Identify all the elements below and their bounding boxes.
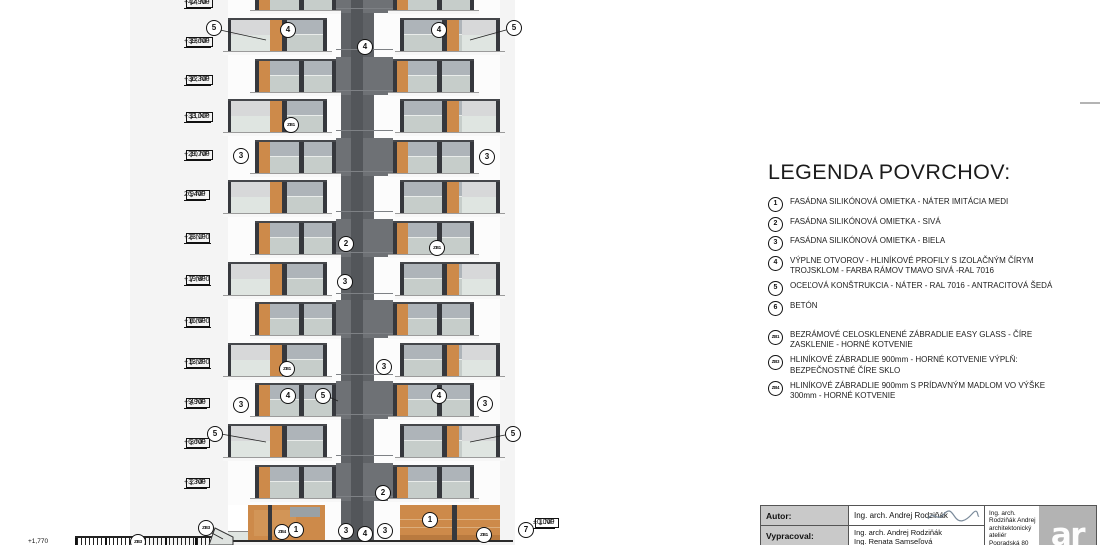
office-info: Ing. arch. Rodziňák Andrej architektonic…: [985, 506, 1041, 545]
module-top-line: [228, 180, 327, 182]
legend-item: ZB1BEZRÁMOVÉ CELOSKLENENÉ ZÁBRADLIE EASY…: [768, 330, 1088, 351]
window-mullion: [255, 302, 259, 335]
legend-item-text: VÝPLNE OTVOROV - HLINÍKOVÉ PROFILY S IZO…: [790, 256, 1068, 277]
timber-panel: [397, 383, 408, 416]
legend-item-tag: 5: [768, 281, 783, 296]
annotation-bubble: 2: [375, 485, 391, 501]
balcony-side-wall: [462, 180, 497, 197]
legend-item-tag: ZB3: [768, 355, 783, 370]
floor-module: [255, 465, 336, 498]
floor-module: [400, 99, 500, 132]
balcony-side-wall: [462, 99, 497, 116]
level-floor-box: 14.NP: [186, 0, 213, 8]
window-mullion: [282, 262, 287, 295]
balcony-railing-glass: [462, 197, 497, 213]
balcony-railing-glass: [231, 360, 270, 376]
level-floor-box: 8.NP: [186, 233, 210, 243]
balcony-slab: [250, 416, 341, 420]
window-mullion: [400, 18, 404, 51]
annotation-bubble: 3: [377, 523, 393, 539]
floor-module: [400, 18, 500, 51]
window-mullion: [299, 140, 304, 173]
annotation-bubble: 4: [431, 22, 447, 38]
window-mullion: [332, 59, 336, 92]
module-top-line: [255, 221, 336, 223]
fence-tick: [89, 538, 90, 545]
level-floor-box: 2.NP: [186, 478, 210, 488]
window-mullion: [470, 59, 474, 92]
window-mullion: [323, 18, 327, 51]
window-mullion: [393, 59, 397, 92]
fence-tick: [121, 538, 122, 545]
annotation-bubble: ZB3: [198, 520, 214, 536]
fence-tick: [205, 538, 206, 545]
floor-module: [400, 262, 500, 295]
level-floor-box: 1.NP: [535, 518, 559, 528]
level-floor-box: 6.NP: [186, 317, 210, 327]
window-mullion: [393, 383, 397, 416]
fence-post: [105, 538, 107, 545]
fence-tick: [189, 538, 190, 545]
ground-mullion: [268, 505, 272, 541]
module-top-line: [393, 221, 474, 223]
module-top-line: [393, 59, 474, 61]
window-mullion: [470, 221, 474, 254]
window-mullion: [496, 18, 500, 51]
fence-tick: [201, 538, 202, 545]
fence-tick: [149, 538, 150, 545]
floor-module: [400, 343, 500, 376]
fence-post: [75, 538, 77, 545]
vypracoval-names: Ing. arch. Andrej Rodziňák Ing. Renata S…: [849, 526, 985, 545]
annotation-bubble: 5: [206, 20, 222, 36]
window-mullion: [437, 465, 442, 498]
balcony-railing-glass: [462, 360, 497, 376]
window-mullion: [255, 0, 259, 10]
balcony-railing-glass: [231, 35, 270, 51]
level-floor-box: 10.NP: [186, 150, 213, 160]
window-mullion: [282, 424, 287, 457]
legend-item-text: BETÓN: [790, 301, 1068, 316]
fence-tick: [213, 538, 214, 545]
window-mullion: [470, 465, 474, 498]
balcony-side-wall: [231, 262, 270, 279]
window-mullion: [400, 180, 404, 213]
module-top-line: [400, 424, 500, 426]
core-wide-section: [336, 0, 393, 13]
window-mullion: [400, 99, 404, 132]
balcony-slab: [395, 457, 505, 461]
floor-module: [228, 180, 327, 213]
level-floor-box: 4.NP: [186, 398, 210, 408]
window-mullion: [299, 383, 304, 416]
window-mullion: [437, 59, 442, 92]
balcony-slab: [388, 498, 479, 502]
core-slab-line: [336, 90, 393, 91]
annotation-bubble: 4: [357, 39, 373, 55]
balcony-slab: [395, 51, 505, 55]
core-slab-line: [336, 333, 393, 334]
floor-module: [393, 0, 474, 10]
balcony-railing-glass: [231, 279, 270, 295]
window-mullion: [437, 0, 442, 10]
floor-module: [255, 59, 336, 92]
fence-tick: [169, 538, 170, 545]
window-mullion: [400, 343, 404, 376]
window-mullion: [332, 383, 336, 416]
annotation-bubble: 4: [431, 388, 447, 404]
window-mullion: [393, 465, 397, 498]
window-mullion: [228, 18, 231, 51]
timber-panel: [259, 140, 270, 173]
module-top-line: [393, 140, 474, 142]
window-mullion: [442, 262, 447, 295]
timber-panel: [397, 140, 408, 173]
window-mullion: [442, 343, 447, 376]
fence-tick: [197, 538, 198, 545]
timber-panel: [259, 465, 270, 498]
floor-module: [393, 302, 474, 335]
legend-item-tag: ZB4: [768, 381, 783, 396]
core-slab-line: [336, 455, 393, 456]
balcony-slab: [223, 132, 332, 136]
fence-tick: [113, 538, 114, 545]
balcony-slab: [250, 498, 341, 502]
timber-panel: [447, 262, 459, 295]
window-mullion: [255, 383, 259, 416]
module-top-line: [400, 262, 500, 264]
fence-tick: [217, 538, 218, 545]
fence-tick: [157, 538, 158, 545]
balcony-side-wall: [231, 18, 270, 35]
window-mullion: [323, 262, 327, 295]
annotation-bubble: 7: [518, 522, 534, 538]
floor-module: [228, 99, 327, 132]
annotation-bubble: 3: [337, 274, 353, 290]
window-mullion: [228, 262, 231, 295]
level-floor-box: 7.NP: [186, 275, 210, 285]
level-floor-box: 9.NP: [186, 190, 210, 200]
legend-item-text: HLINÍKOVÉ ZÁBRADLIE 900mm S PRÍDAVNÝM MA…: [790, 381, 1068, 402]
annotation-bubble: 3: [479, 149, 495, 165]
window-mullion: [496, 180, 500, 213]
window-mullion: [393, 0, 397, 10]
window-mullion: [282, 180, 287, 213]
core-slab-line: [336, 252, 393, 253]
autor-name: Ing. arch. Andrej Rodziňák: [849, 506, 985, 526]
annotation-bubble: ZB1: [429, 240, 445, 256]
window-mullion: [393, 140, 397, 173]
window-mullion: [393, 302, 397, 335]
annotation-bubble: 5: [505, 426, 521, 442]
annotation-bubble: 5: [506, 20, 522, 36]
legend-item-text: HLINÍKOVÉ ZÁBRADLIE 900mm - HORNÉ KOTVEN…: [790, 355, 1068, 376]
timber-panel: [259, 383, 270, 416]
title-block: Autor: Ing. arch. Andrej Rodziňák Vyprac…: [760, 505, 1097, 545]
legend-item-text: FASÁDNA SILIKÓNOVÁ OMIETKA - SIVÁ: [790, 217, 1068, 232]
module-top-line: [400, 180, 500, 182]
fence-tick: [177, 538, 178, 545]
balcony-railing-glass: [462, 279, 497, 295]
window-mullion: [255, 465, 259, 498]
legend-item-tag: 4: [768, 256, 783, 271]
timber-panel: [397, 465, 408, 498]
timber-panel: [447, 180, 459, 213]
balcony-slab: [250, 254, 341, 258]
legend-item-tag: 1: [768, 197, 783, 212]
ground-level-note: +1,770: [28, 538, 48, 545]
core-center-column: [351, 0, 363, 541]
balcony-railing-glass: [231, 116, 270, 132]
legend-item-list: 1FASÁDNA SILIKÓNOVÁ OMIETKA - NÁTER IMIT…: [768, 197, 1088, 402]
core-slab-line: [336, 171, 393, 172]
balcony-side-wall: [462, 343, 497, 360]
balcony-slab: [223, 376, 332, 380]
balcony-side-wall: [231, 424, 270, 441]
balcony-slab: [388, 335, 479, 339]
balcony-slab: [388, 92, 479, 96]
window-mullion: [228, 99, 231, 132]
architectural-drawing-sheet: +42,900↓14.NP+39,600↓13.NP+36,300↓12.NP+…: [0, 0, 1100, 545]
balcony-slab: [250, 92, 341, 96]
window-mullion: [323, 99, 327, 132]
annotation-bubble: 2: [338, 236, 354, 252]
floor-module: [393, 59, 474, 92]
window-mullion: [332, 465, 336, 498]
sheet-edge-mark: [1080, 102, 1100, 104]
legend-item-tag: ZB1: [768, 330, 783, 345]
window-mullion: [255, 221, 259, 254]
legend-item: 3FASÁDNA SILIKÓNOVÁ OMIETKA - BIELA: [768, 236, 1088, 251]
floor-module: [255, 0, 336, 10]
legend-title: LEGENDA POVRCHOV:: [768, 160, 1088, 185]
timber-panel: [270, 262, 282, 295]
annotation-bubble: 3: [376, 359, 392, 375]
annotation-bubble: 3: [233, 397, 249, 413]
module-top-line: [255, 302, 336, 304]
annotation-bubble: ZB1: [279, 361, 295, 377]
window-mullion: [470, 302, 474, 335]
floor-module: [255, 302, 336, 335]
floor-module: [228, 18, 327, 51]
window-mullion: [496, 424, 500, 457]
annotation-bubble: 1: [422, 512, 438, 528]
autor-label: Autor:: [761, 506, 849, 526]
balcony-side-wall: [231, 180, 270, 197]
balcony-slab: [223, 457, 332, 461]
level-floor-box: 11.NP: [186, 112, 213, 122]
timber-panel: [447, 18, 459, 51]
fence-tick: [209, 538, 210, 545]
window-mullion: [437, 302, 442, 335]
floor-module: [255, 140, 336, 173]
timber-panel: [259, 59, 270, 92]
window-mullion: [332, 302, 336, 335]
annotation-bubble: 4: [280, 388, 296, 404]
floor-module: [228, 343, 327, 376]
window-mullion: [255, 59, 259, 92]
balcony-slab: [395, 132, 505, 136]
balcony-railing-glass: [462, 35, 497, 51]
fence-tick: [193, 538, 194, 545]
core-slab-line: [336, 414, 393, 415]
legend-item: 2FASÁDNA SILIKÓNOVÁ OMIETKA - SIVÁ: [768, 217, 1088, 232]
balcony-slab: [250, 173, 341, 177]
timber-panel: [397, 221, 408, 254]
annotation-bubble: 4: [357, 526, 373, 542]
balcony-slab: [388, 10, 479, 14]
fence-tick: [161, 538, 162, 545]
legend-item: 4VÝPLNE OTVOROV - HLINÍKOVÉ PROFILY S IZ…: [768, 256, 1088, 277]
annotation-bubble: ZB1: [283, 117, 299, 133]
balcony-railing-glass: [231, 197, 270, 213]
legend-item-text: FASÁDNA SILIKÓNOVÁ OMIETKA - BIELA: [790, 236, 1068, 251]
fence-tick: [93, 538, 94, 545]
balcony-railing-glass: [462, 441, 497, 457]
balcony-slab: [223, 295, 332, 299]
timber-panel: [270, 424, 282, 457]
timber-panel: [270, 99, 282, 132]
ground-mullion: [452, 505, 457, 541]
fence-tick: [81, 538, 82, 545]
vypracoval-label: Vypracoval:: [761, 526, 849, 545]
fence-tick: [125, 538, 126, 545]
window-mullion: [496, 343, 500, 376]
timber-panel: [447, 343, 459, 376]
timber-panel: [259, 302, 270, 335]
fence-tick: [117, 538, 118, 545]
level-floor-box: 13.NP: [186, 37, 213, 47]
window-mullion: [332, 0, 336, 10]
window-mullion: [470, 383, 474, 416]
balcony-side-wall: [231, 343, 270, 360]
window-mullion: [437, 140, 442, 173]
balcony-slab: [395, 213, 505, 217]
studio-logo: ar: [1039, 506, 1096, 545]
ground-window-strip: [290, 507, 320, 517]
core-slab-line: [336, 211, 393, 212]
timber-panel: [397, 302, 408, 335]
window-mullion: [299, 59, 304, 92]
legend-item-text: OCEĽOVÁ KONŠTRUKCIA - NÁTER - RAL 7016 -…: [790, 281, 1068, 296]
annotation-bubble: 1: [288, 522, 304, 538]
legend-item: 6BETÓN: [768, 301, 1088, 316]
core-slab-line: [336, 130, 393, 131]
balcony-side-wall: [462, 18, 497, 35]
balcony-slab: [388, 416, 479, 420]
core-slab-line: [336, 8, 393, 9]
module-top-line: [255, 140, 336, 142]
timber-panel: [270, 180, 282, 213]
floor-module: [393, 465, 474, 498]
legend-item-text: FASÁDNA SILIKÓNOVÁ OMIETKA - NÁTER IMITÁ…: [790, 197, 1068, 212]
window-mullion: [470, 0, 474, 10]
module-top-line: [393, 383, 474, 385]
window-mullion: [323, 180, 327, 213]
level-floor-box: 3.NP: [186, 438, 210, 448]
fence-tick: [85, 538, 86, 545]
floor-module: [400, 180, 500, 213]
module-top-line: [255, 383, 336, 385]
annotation-bubble: ZB1: [476, 527, 492, 543]
fence-tick: [221, 538, 222, 545]
fence-tick: [153, 538, 154, 545]
balcony-slab: [250, 10, 341, 14]
window-mullion: [332, 221, 336, 254]
module-top-line: [393, 465, 474, 467]
window-mullion: [299, 221, 304, 254]
window-mullion: [393, 221, 397, 254]
legend-item-text: BEZRÁMOVÉ CELOSKLENENÉ ZÁBRADLIE EASY GL…: [790, 330, 1068, 351]
window-mullion: [470, 140, 474, 173]
window-mullion: [228, 180, 231, 213]
module-top-line: [255, 465, 336, 467]
legend-item: ZB4HLINÍKOVÉ ZÁBRADLIE 900mm S PRÍDAVNÝM…: [768, 381, 1088, 402]
module-top-line: [228, 262, 327, 264]
annotation-bubble: 5: [207, 426, 223, 442]
window-mullion: [255, 140, 259, 173]
balcony-slab: [395, 295, 505, 299]
fence-tick: [173, 538, 174, 545]
core-slab-line: [336, 293, 393, 294]
legend-item-tag: 2: [768, 217, 783, 232]
balcony-side-wall: [231, 99, 270, 116]
annotation-bubble: 4: [280, 22, 296, 38]
module-top-line: [228, 18, 327, 20]
window-mullion: [299, 302, 304, 335]
legend-item: 5OCEĽOVÁ KONŠTRUKCIA - NÁTER - RAL 7016 …: [768, 281, 1088, 296]
module-top-line: [393, 302, 474, 304]
timber-panel: [259, 0, 270, 10]
fence: [75, 536, 228, 545]
floor-module: [400, 424, 500, 457]
timber-panel: [270, 18, 282, 51]
balcony-slab: [223, 51, 332, 55]
window-mullion: [228, 343, 231, 376]
fence-post: [195, 538, 197, 545]
balcony-railing-glass: [462, 116, 497, 132]
module-top-line: [255, 59, 336, 61]
floor-module: [228, 424, 327, 457]
timber-panel: [397, 59, 408, 92]
window-mullion: [400, 424, 404, 457]
window-mullion: [442, 424, 447, 457]
module-top-line: [400, 18, 500, 20]
legend-item: ZB3HLINÍKOVÉ ZÁBRADLIE 900mm - HORNÉ KOT…: [768, 355, 1088, 376]
level-floor-box: 5.NP: [186, 358, 210, 368]
window-mullion: [299, 0, 304, 10]
module-top-line: [228, 424, 327, 426]
module-top-line: [228, 343, 327, 345]
fence-tick: [77, 538, 78, 545]
floor-module: [228, 262, 327, 295]
annotation-bubble: ZB3: [130, 534, 146, 545]
legend-item-tag: 6: [768, 301, 783, 316]
window-mullion: [400, 262, 404, 295]
fence-tick: [185, 538, 186, 545]
window-mullion: [496, 99, 500, 132]
ground-clad-line: [400, 519, 500, 520]
window-mullion: [323, 424, 327, 457]
timber-panel: [447, 99, 459, 132]
annotation-bubble: 3: [338, 523, 354, 539]
balcony-railing-glass: [231, 441, 270, 457]
timber-panel: [259, 221, 270, 254]
fence-post: [165, 538, 167, 545]
timber-panel: [397, 0, 408, 10]
legend-item: 1FASÁDNA SILIKÓNOVÁ OMIETKA - NÁTER IMIT…: [768, 197, 1088, 212]
window-mullion: [442, 99, 447, 132]
